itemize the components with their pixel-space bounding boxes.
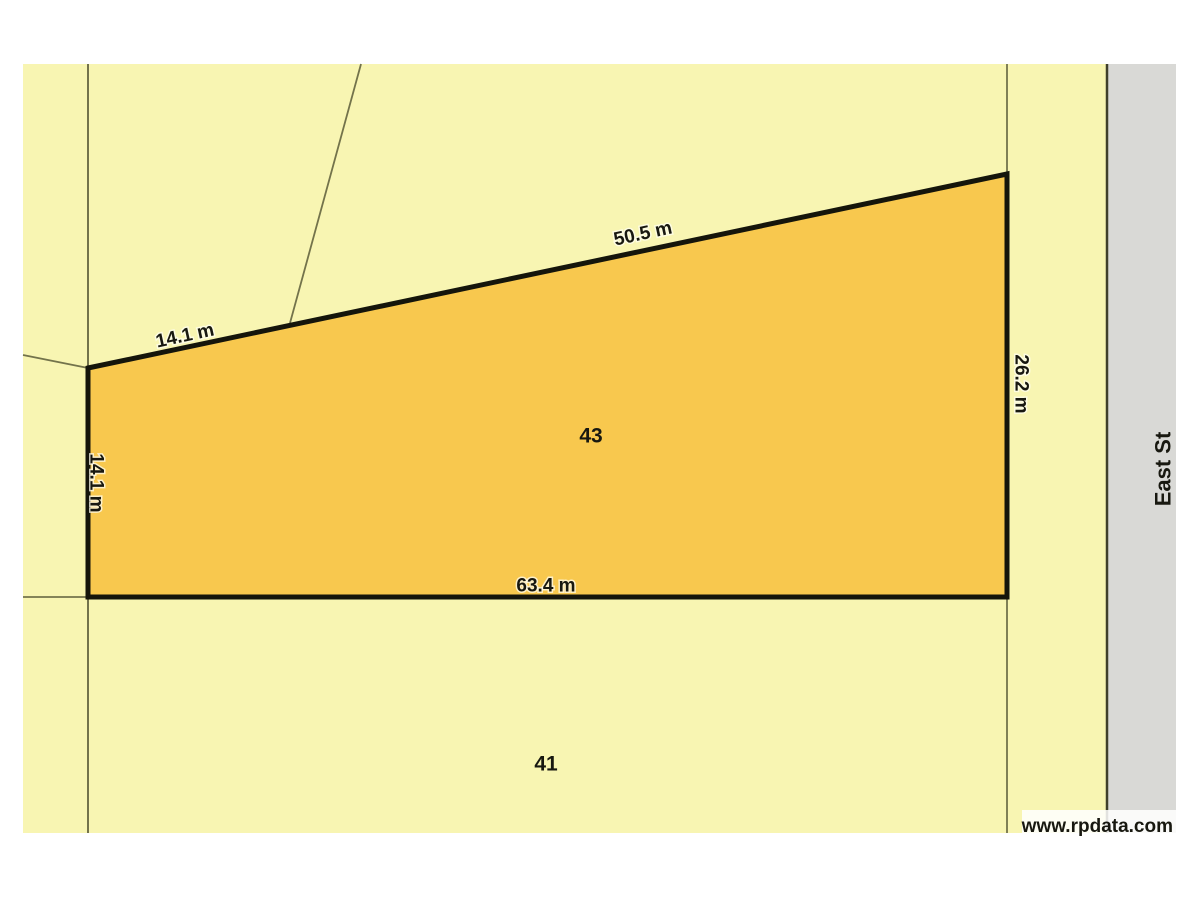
svg-text:14.1 m: 14.1 m xyxy=(86,453,107,512)
svg-text:East St: East St xyxy=(1151,431,1176,506)
svg-text:41: 41 xyxy=(534,753,558,776)
svg-text:26.2 m: 26.2 m xyxy=(1011,354,1032,413)
svg-text:63.4 m: 63.4 m xyxy=(516,576,575,597)
svg-text:43: 43 xyxy=(579,425,602,448)
svg-text:www.rpdata.com: www.rpdata.com xyxy=(1021,816,1173,837)
